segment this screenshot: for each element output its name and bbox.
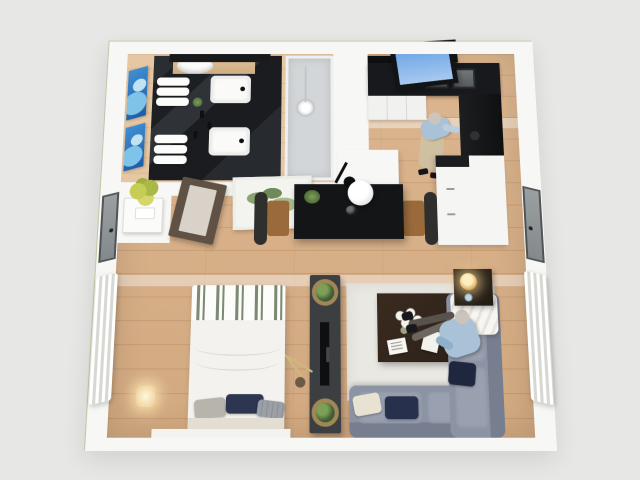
planter-box (135, 207, 155, 219)
basket-plant (312, 398, 339, 426)
chair-seat (402, 201, 425, 236)
basket-plant (312, 279, 339, 306)
brass-lamp (459, 273, 477, 290)
chair-seat (267, 201, 289, 236)
vessel-sink (208, 127, 250, 155)
kitchen-peninsula (435, 155, 508, 244)
kitchen-person-head (428, 112, 441, 124)
towel-roll (156, 88, 189, 96)
wall-sconce (136, 386, 156, 408)
dining-chair (254, 192, 293, 245)
chair-back (424, 192, 439, 245)
pendant-lamp (348, 180, 374, 205)
striped-runner (191, 285, 285, 320)
blue-art (126, 66, 148, 121)
sofa-pillow (385, 396, 419, 419)
living-person-head (455, 310, 470, 324)
table-plant (304, 190, 320, 204)
pillow (194, 397, 227, 420)
chair-back (254, 192, 268, 245)
toiletry-bottle (193, 131, 197, 139)
sofa-pillow (448, 361, 476, 387)
entry-plant (123, 176, 164, 209)
table-vase (346, 206, 358, 216)
vanity-mirror (169, 54, 270, 62)
media-console (309, 275, 341, 433)
shower (285, 56, 334, 180)
toiletry-bottle (200, 111, 204, 118)
cup (464, 293, 472, 301)
cooktop-unit (459, 94, 505, 161)
vessel-sink (210, 76, 251, 103)
dining-chair (399, 192, 438, 245)
base-cabinets (368, 96, 426, 120)
apartment-shell (84, 41, 556, 450)
pillow (256, 399, 285, 420)
blue-art (123, 123, 145, 172)
bed (187, 285, 285, 435)
grass-pot (295, 377, 305, 388)
towel-roll (153, 155, 187, 164)
towel-roll (157, 78, 190, 86)
side-table (453, 269, 493, 306)
towel-roll (154, 135, 187, 143)
toiletry-bottle (207, 122, 211, 129)
book (387, 337, 408, 355)
duvet-fold (196, 354, 279, 371)
towel-roll (154, 145, 188, 154)
floorplan-render (0, 0, 640, 480)
towel-roll (156, 98, 189, 106)
tv (320, 322, 329, 385)
bathroom (121, 54, 334, 182)
exterior-wall (85, 438, 557, 451)
exterior-wall (109, 42, 533, 55)
